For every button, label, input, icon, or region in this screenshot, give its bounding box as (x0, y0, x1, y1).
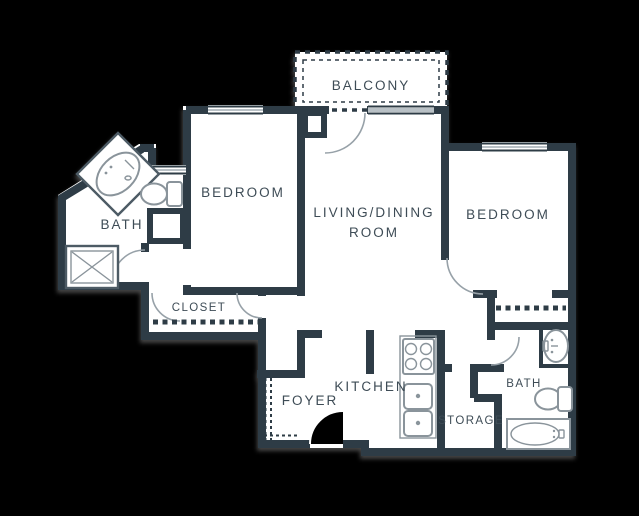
shower (66, 246, 118, 288)
foyer-label: FOYER (282, 393, 339, 408)
floor-plan: BALCONY BEDROOM LIVING/DINING ROOM BEDRO… (0, 0, 639, 516)
window-balcony-slider (368, 105, 434, 115)
plumbing-chase-living (305, 113, 324, 135)
bedroom-left-label: BEDROOM (201, 185, 285, 200)
bath-left-label: BATH (100, 217, 143, 232)
window-bedroom-left (208, 105, 263, 115)
kitchen-label: KITCHEN (334, 379, 407, 394)
bathtub (507, 419, 570, 449)
window-bedroom-right (482, 142, 547, 152)
floor-plan-canvas: BALCONY BEDROOM LIVING/DINING ROOM BEDRO… (0, 0, 639, 516)
plumbing-chase-left (150, 211, 183, 241)
stove (403, 339, 434, 374)
bedroom-right-label: BEDROOM (466, 207, 550, 222)
balcony-label: BALCONY (332, 78, 411, 93)
storage-label: STORAGE (438, 415, 504, 427)
toilet-right (535, 387, 572, 411)
kitchen-double-sink (404, 384, 432, 436)
vanity-sink-right (543, 330, 568, 362)
bath-right-label: BATH (506, 378, 541, 390)
living-dining-label-line2: ROOM (349, 225, 399, 240)
closet-label: CLOSET (172, 302, 226, 314)
toilet-left (141, 182, 182, 206)
apartment-unit: BALCONY BEDROOM LIVING/DINING ROOM BEDRO… (58, 52, 576, 456)
living-dining-label-line1: LIVING/DINING (313, 205, 434, 220)
